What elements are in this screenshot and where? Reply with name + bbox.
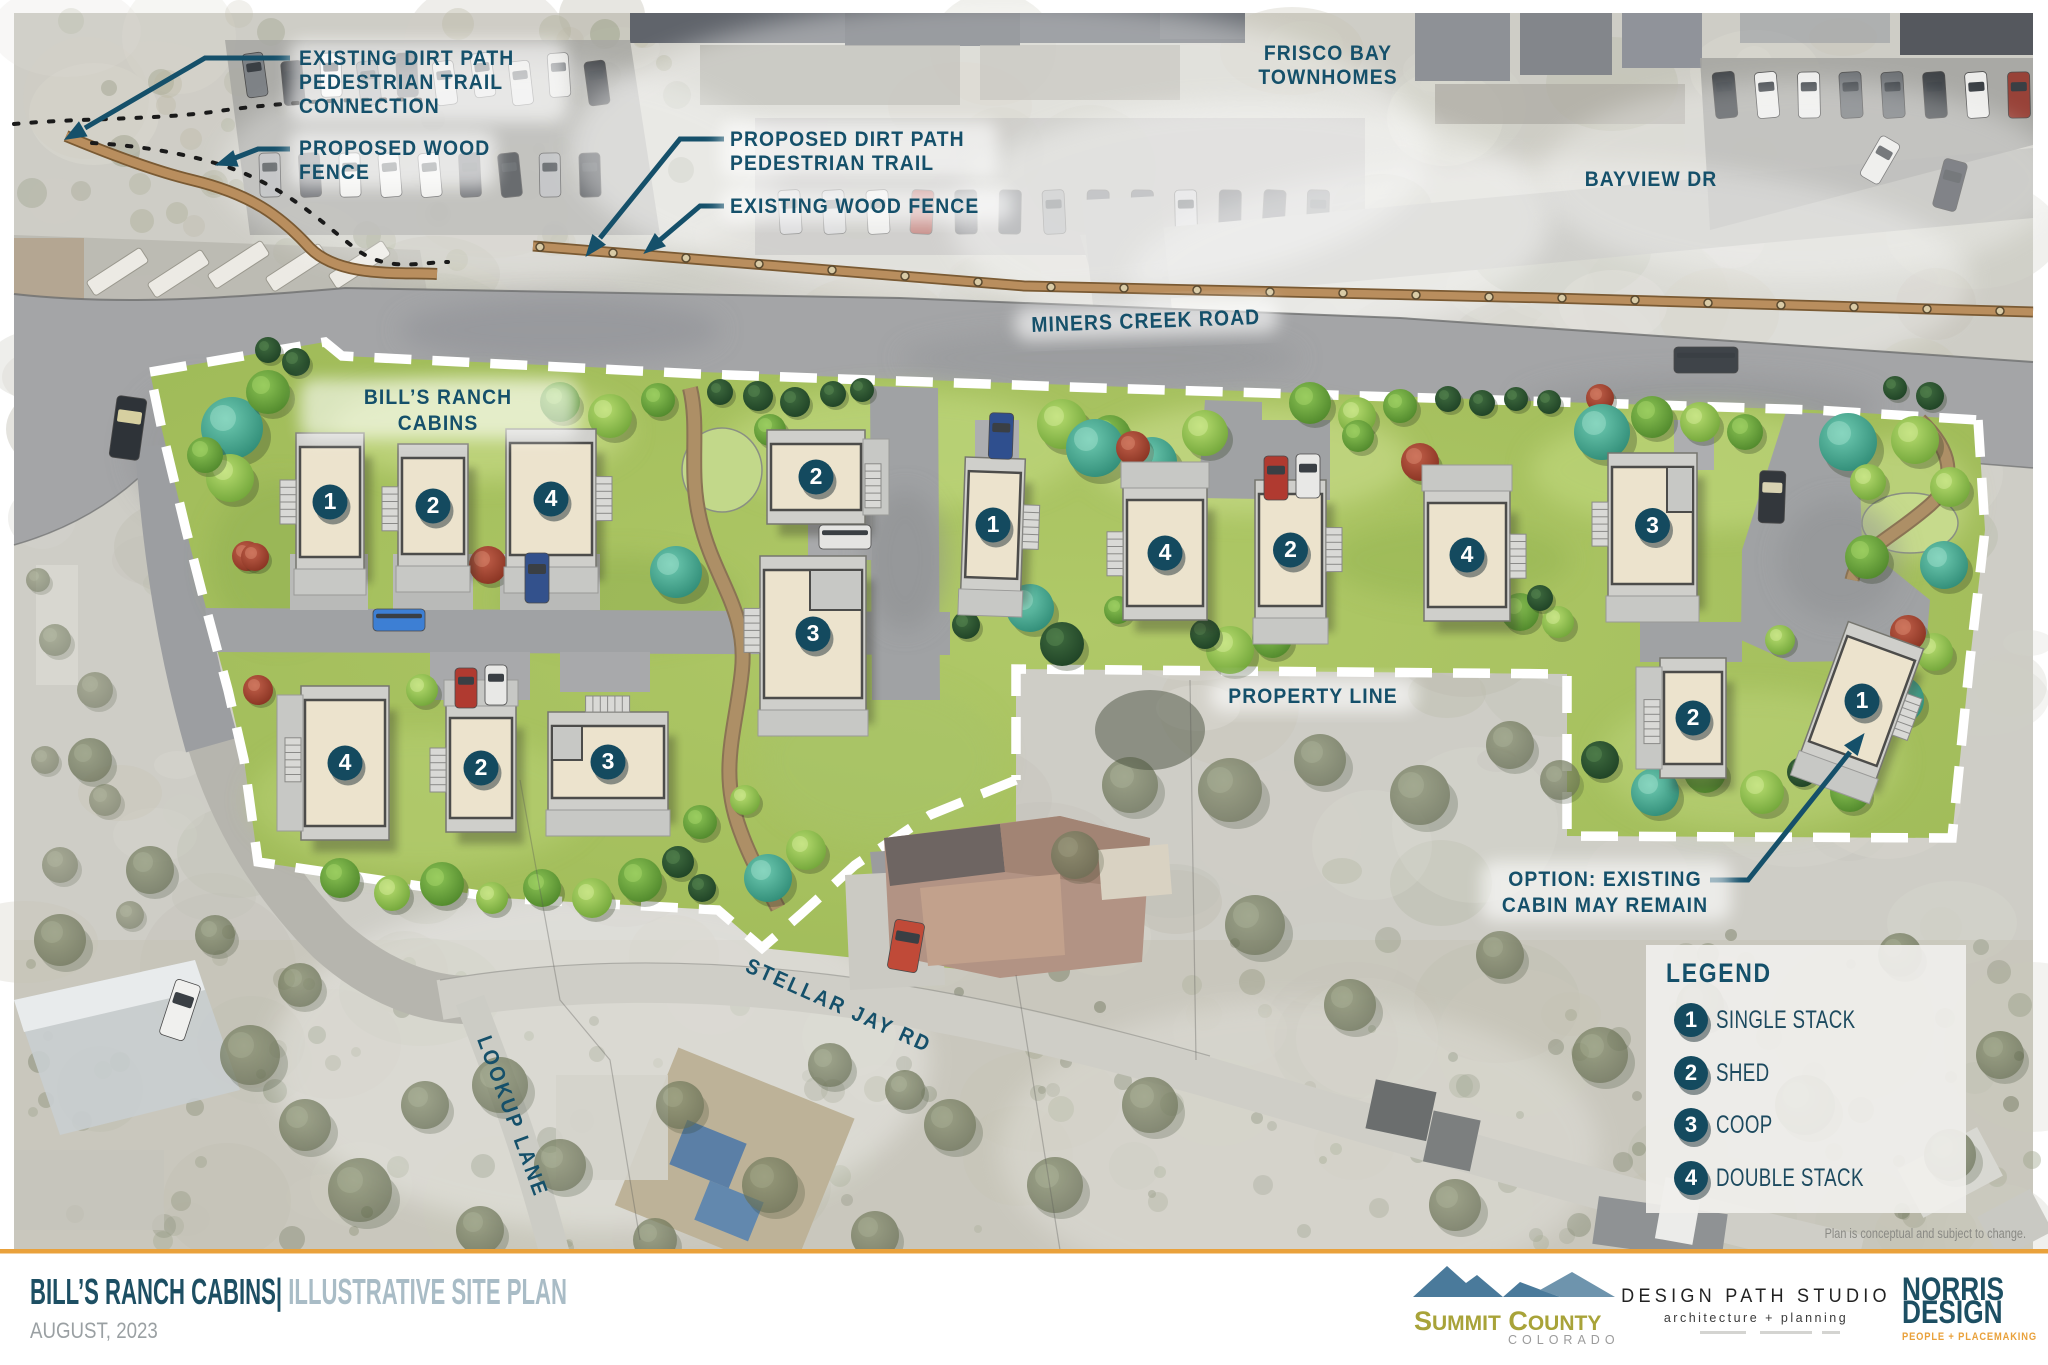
svg-text:COOP: COOP — [1716, 1110, 1773, 1138]
svg-text:2: 2 — [810, 463, 823, 489]
svg-text:CONNECTION: CONNECTION — [299, 94, 440, 118]
svg-text:3: 3 — [1646, 512, 1659, 538]
svg-text:1: 1 — [324, 488, 337, 514]
svg-text:EXISTING WOOD FENCE: EXISTING WOOD FENCE — [730, 194, 979, 218]
svg-text:FENCE: FENCE — [299, 160, 370, 184]
svg-text:1: 1 — [1685, 1007, 1697, 1032]
svg-text:4: 4 — [1159, 539, 1172, 565]
svg-text:DESIGN PATH STUDIO: DESIGN PATH STUDIO — [1621, 1285, 1891, 1307]
svg-text:PEDESTRIAN TRAIL: PEDESTRIAN TRAIL — [730, 151, 934, 175]
svg-text:2: 2 — [1284, 536, 1297, 562]
svg-text:AUGUST, 2023: AUGUST, 2023 — [30, 1320, 158, 1344]
svg-text:DESIGN: DESIGN — [1902, 1296, 2003, 1331]
svg-text:1: 1 — [987, 511, 1000, 537]
svg-text:2: 2 — [1685, 1060, 1697, 1085]
svg-text:SINGLE STACK: SINGLE STACK — [1716, 1005, 1855, 1033]
svg-text:4: 4 — [1685, 1165, 1698, 1190]
svg-text:SHED: SHED — [1716, 1058, 1770, 1086]
svg-text:architecture + planning: architecture + planning — [1664, 1311, 1848, 1325]
svg-text:FRISCO BAY: FRISCO BAY — [1264, 41, 1392, 65]
svg-text:1: 1 — [1856, 687, 1869, 713]
svg-text:LEGEND: LEGEND — [1666, 958, 1772, 988]
svg-text:3: 3 — [807, 620, 820, 646]
svg-text:BILL’S RANCH: BILL’S RANCH — [364, 385, 512, 409]
svg-text:4: 4 — [339, 749, 352, 775]
svg-text:DOUBLE STACK: DOUBLE STACK — [1716, 1163, 1864, 1191]
svg-text:COLORADO: COLORADO — [1508, 1333, 1620, 1347]
svg-text:Plan is conceptual and subject: Plan is conceptual and subject to change… — [1825, 1226, 2026, 1242]
svg-text:OPTION: EXISTING: OPTION: EXISTING — [1508, 867, 1701, 891]
svg-text:TOWNHOMES: TOWNHOMES — [1258, 65, 1397, 89]
svg-text:PEOPLE + PLACEMAKING: PEOPLE + PLACEMAKING — [1902, 1331, 2037, 1343]
svg-text:3: 3 — [602, 748, 615, 774]
svg-text:CABINS: CABINS — [398, 411, 479, 435]
svg-text:2: 2 — [427, 492, 440, 518]
svg-text:CABIN MAY REMAIN: CABIN MAY REMAIN — [1502, 893, 1708, 917]
svg-text:2: 2 — [475, 754, 488, 780]
svg-text:EXISTING DIRT PATH: EXISTING DIRT PATH — [299, 46, 514, 70]
svg-text:PEDESTRIAN TRAIL: PEDESTRIAN TRAIL — [299, 70, 503, 94]
svg-text:PROPERTY LINE: PROPERTY LINE — [1228, 684, 1397, 708]
svg-text:2: 2 — [1687, 704, 1700, 730]
svg-text:BILL’S RANCH CABINS| ILLUSTRAT: BILL’S RANCH CABINS| ILLUSTRATIVE SITE P… — [30, 1273, 567, 1313]
svg-text:4: 4 — [545, 485, 558, 511]
svg-text:BAYVIEW DR: BAYVIEW DR — [1585, 167, 1718, 191]
svg-text:PROPOSED WOOD: PROPOSED WOOD — [299, 136, 490, 160]
svg-text:4: 4 — [1461, 541, 1474, 567]
svg-text:3: 3 — [1685, 1112, 1697, 1137]
svg-text:PROPOSED DIRT PATH: PROPOSED DIRT PATH — [730, 127, 965, 151]
